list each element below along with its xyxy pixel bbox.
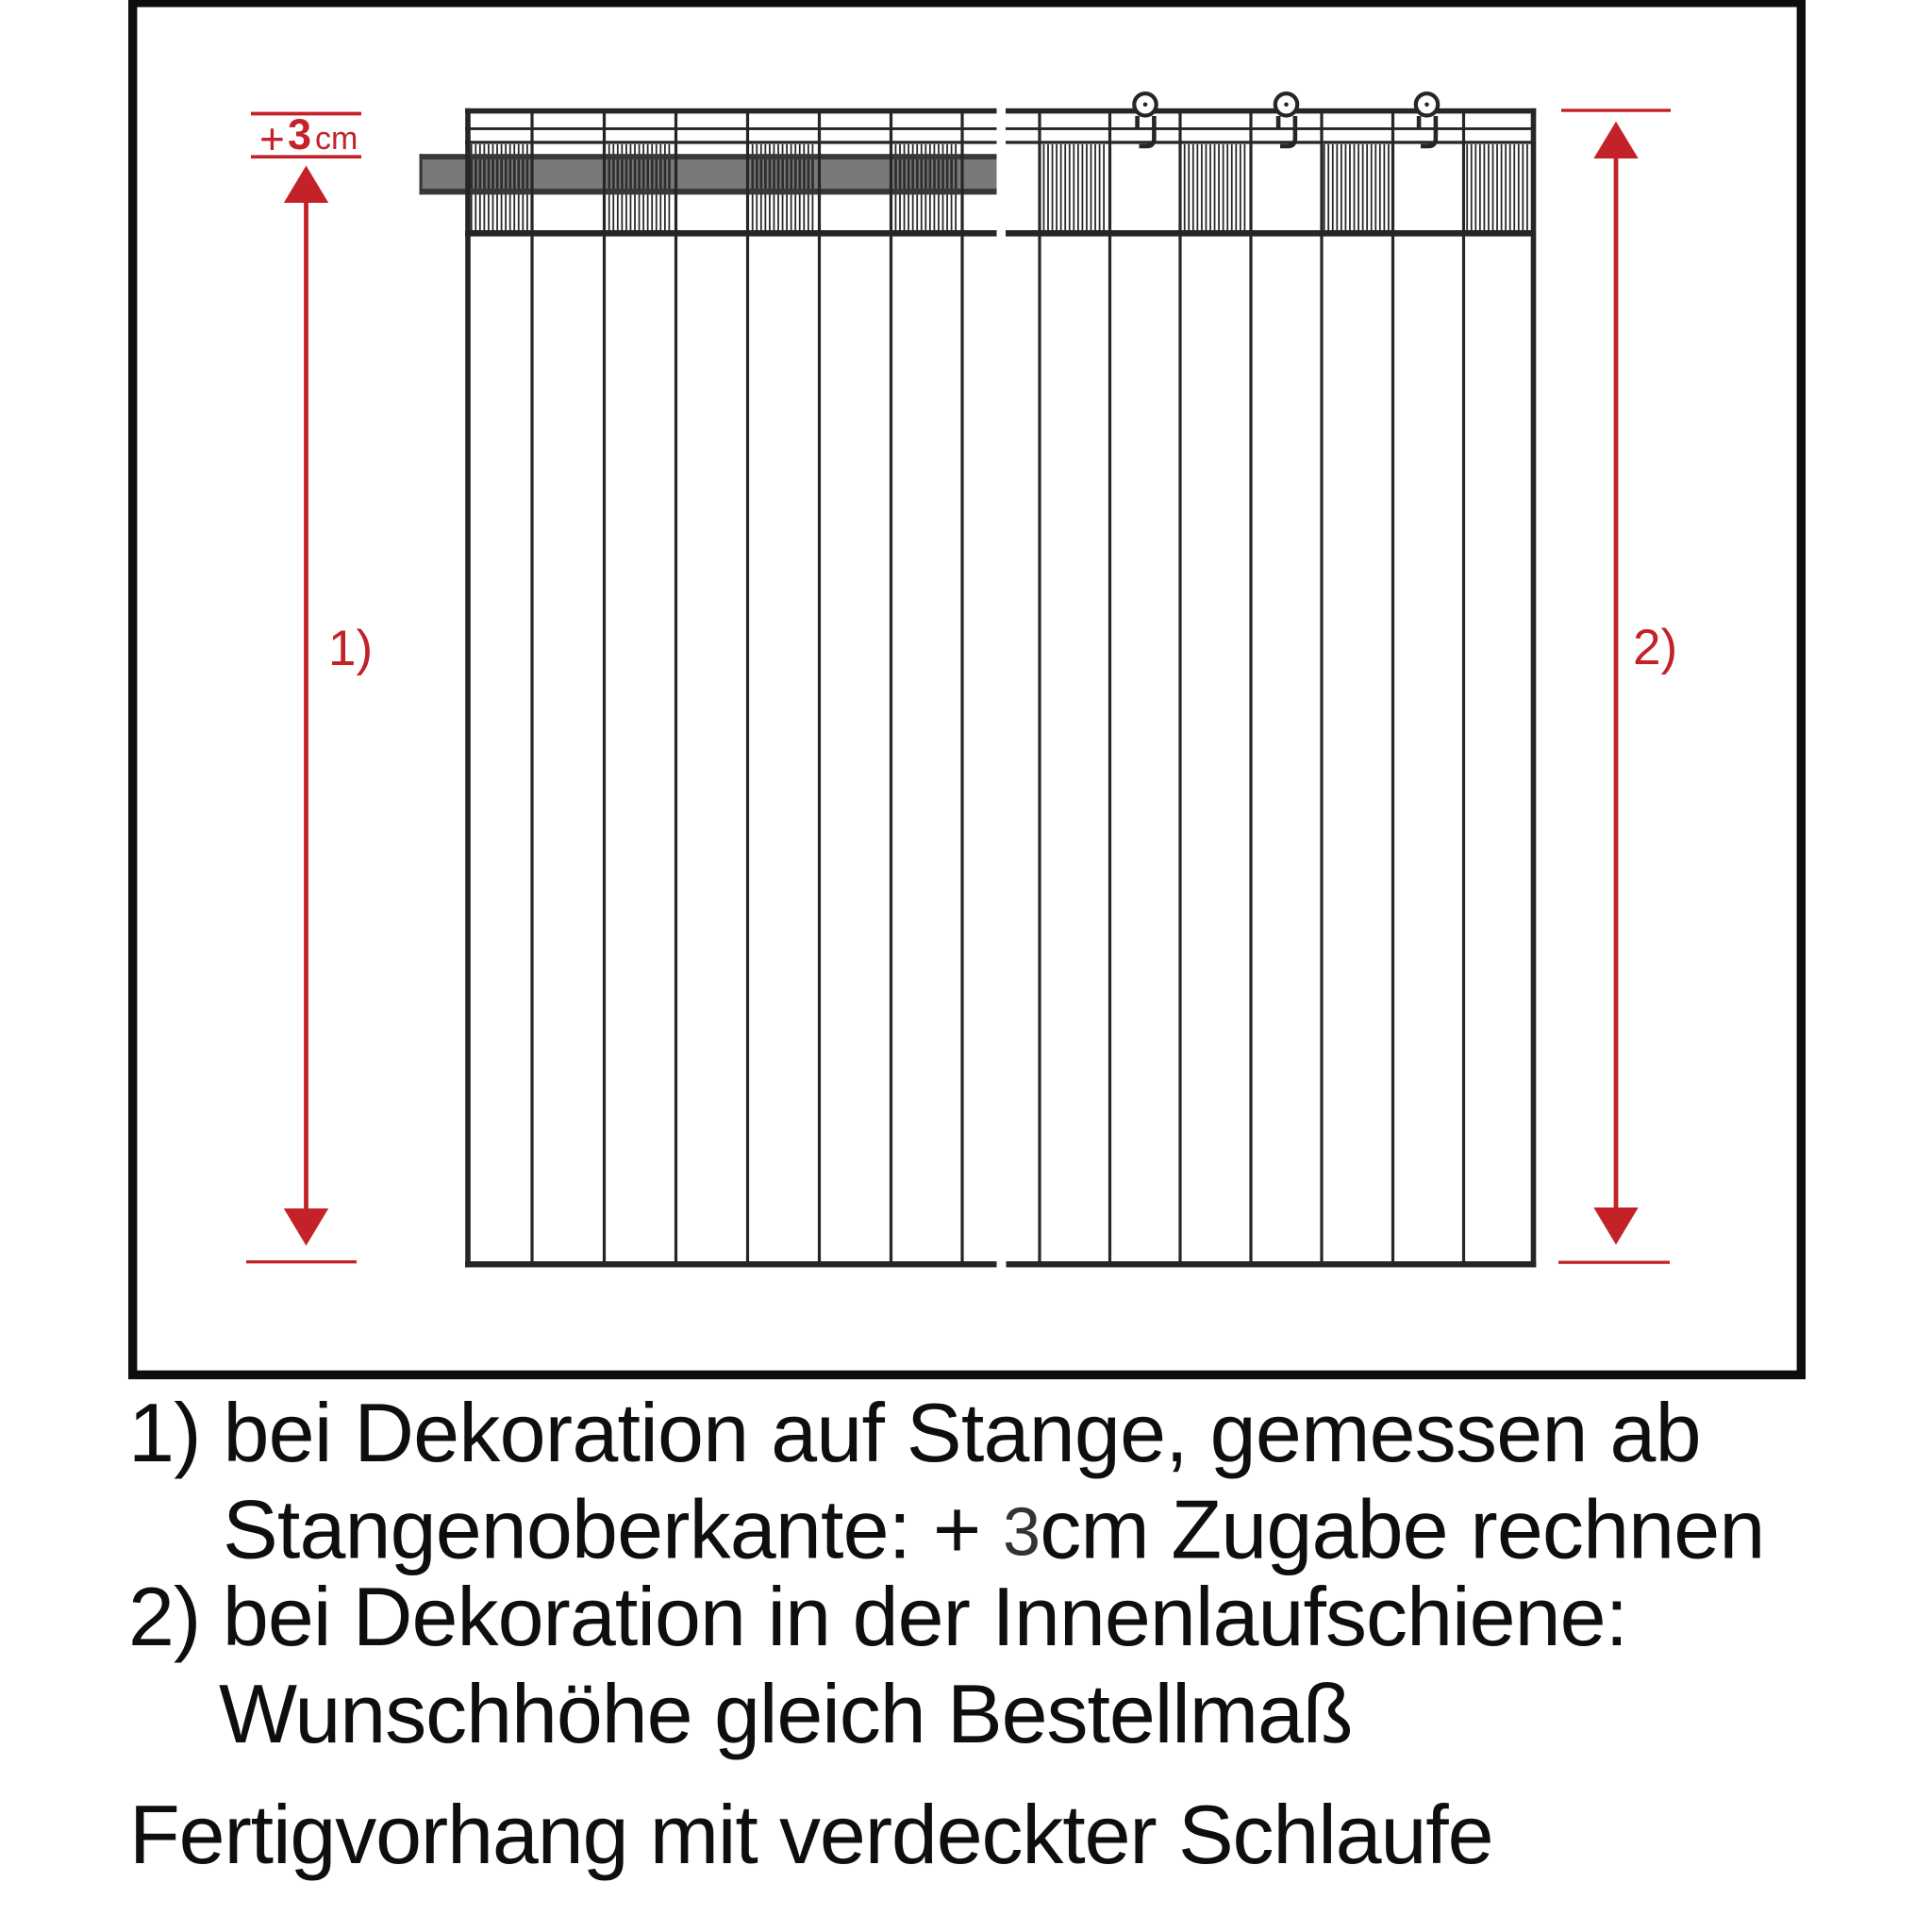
svg-text:1): 1) — [328, 621, 373, 676]
svg-text:2): 2) — [1633, 620, 1677, 675]
svg-text:3: 3 — [288, 110, 311, 158]
svg-text:Wunschhöhe gleich Bestellmaß: Wunschhöhe gleich Bestellmaß — [219, 1667, 1353, 1760]
svg-text:cm: cm — [315, 121, 358, 157]
svg-text:Stangenoberkante: + 3cm Zugabe: Stangenoberkante: + 3cm Zugabe rechnen — [223, 1483, 1764, 1576]
svg-text:2) bei Dekoration in der Innen: 2) bei Dekoration in der Innenlaufschien… — [128, 1570, 1627, 1663]
svg-text:1) bei Dekoration auf Stange,: 1) bei Dekoration auf Stange, gemessen a… — [128, 1386, 1701, 1479]
svg-text:Fertigvorhang mit verdeckter S: Fertigvorhang mit verdeckter Schlaufe — [129, 1788, 1492, 1881]
